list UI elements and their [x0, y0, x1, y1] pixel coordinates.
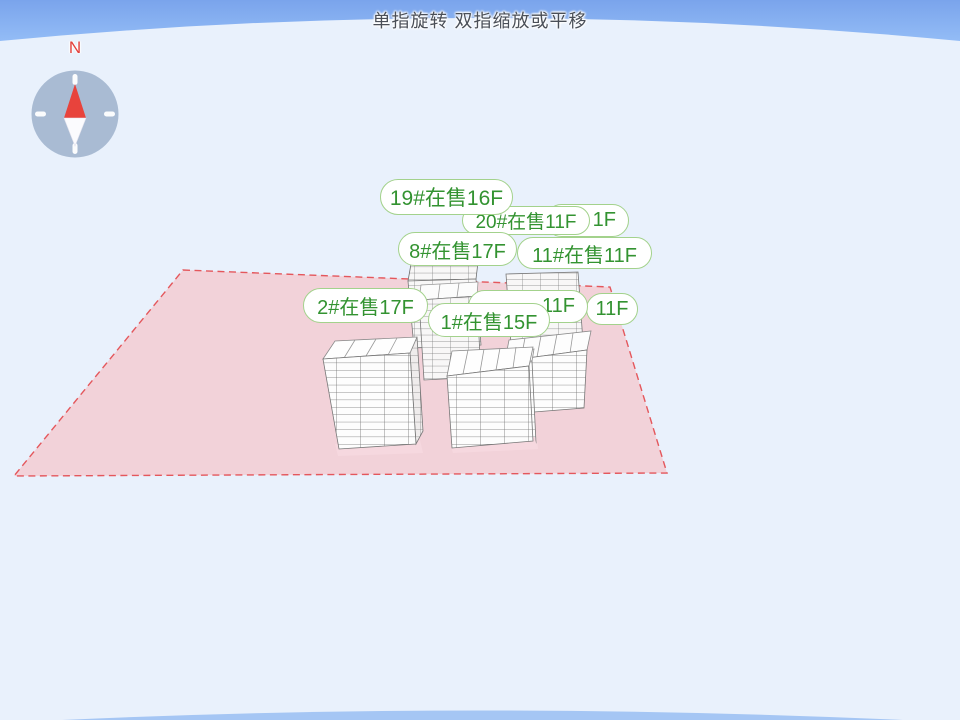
sandbox-3d-canvas[interactable]: 单指旋转 双指缩放或平移 N 1F 20#在售11F 11#在售11F 8#在售… [0, 0, 960, 720]
building[interactable] [447, 347, 537, 453]
building[interactable] [323, 337, 423, 456]
building-label-8[interactable]: 8#在售17F [398, 232, 517, 266]
building-label-19[interactable]: 19#在售16F [380, 179, 513, 215]
scene-3d[interactable] [0, 0, 960, 720]
building-label-2[interactable]: 2#在售17F [303, 288, 428, 323]
compass-north-label: N [31, 38, 119, 58]
building-label-1[interactable]: 1#在售15F [428, 303, 550, 337]
building-label-11[interactable]: 11#在售11F [517, 237, 652, 269]
compass-rose-icon [31, 70, 119, 158]
gesture-hint: 单指旋转 双指缩放或平移 [0, 7, 960, 33]
compass[interactable]: N [31, 70, 119, 178]
building-label-partial-11f-right[interactable]: 11F [586, 293, 638, 325]
